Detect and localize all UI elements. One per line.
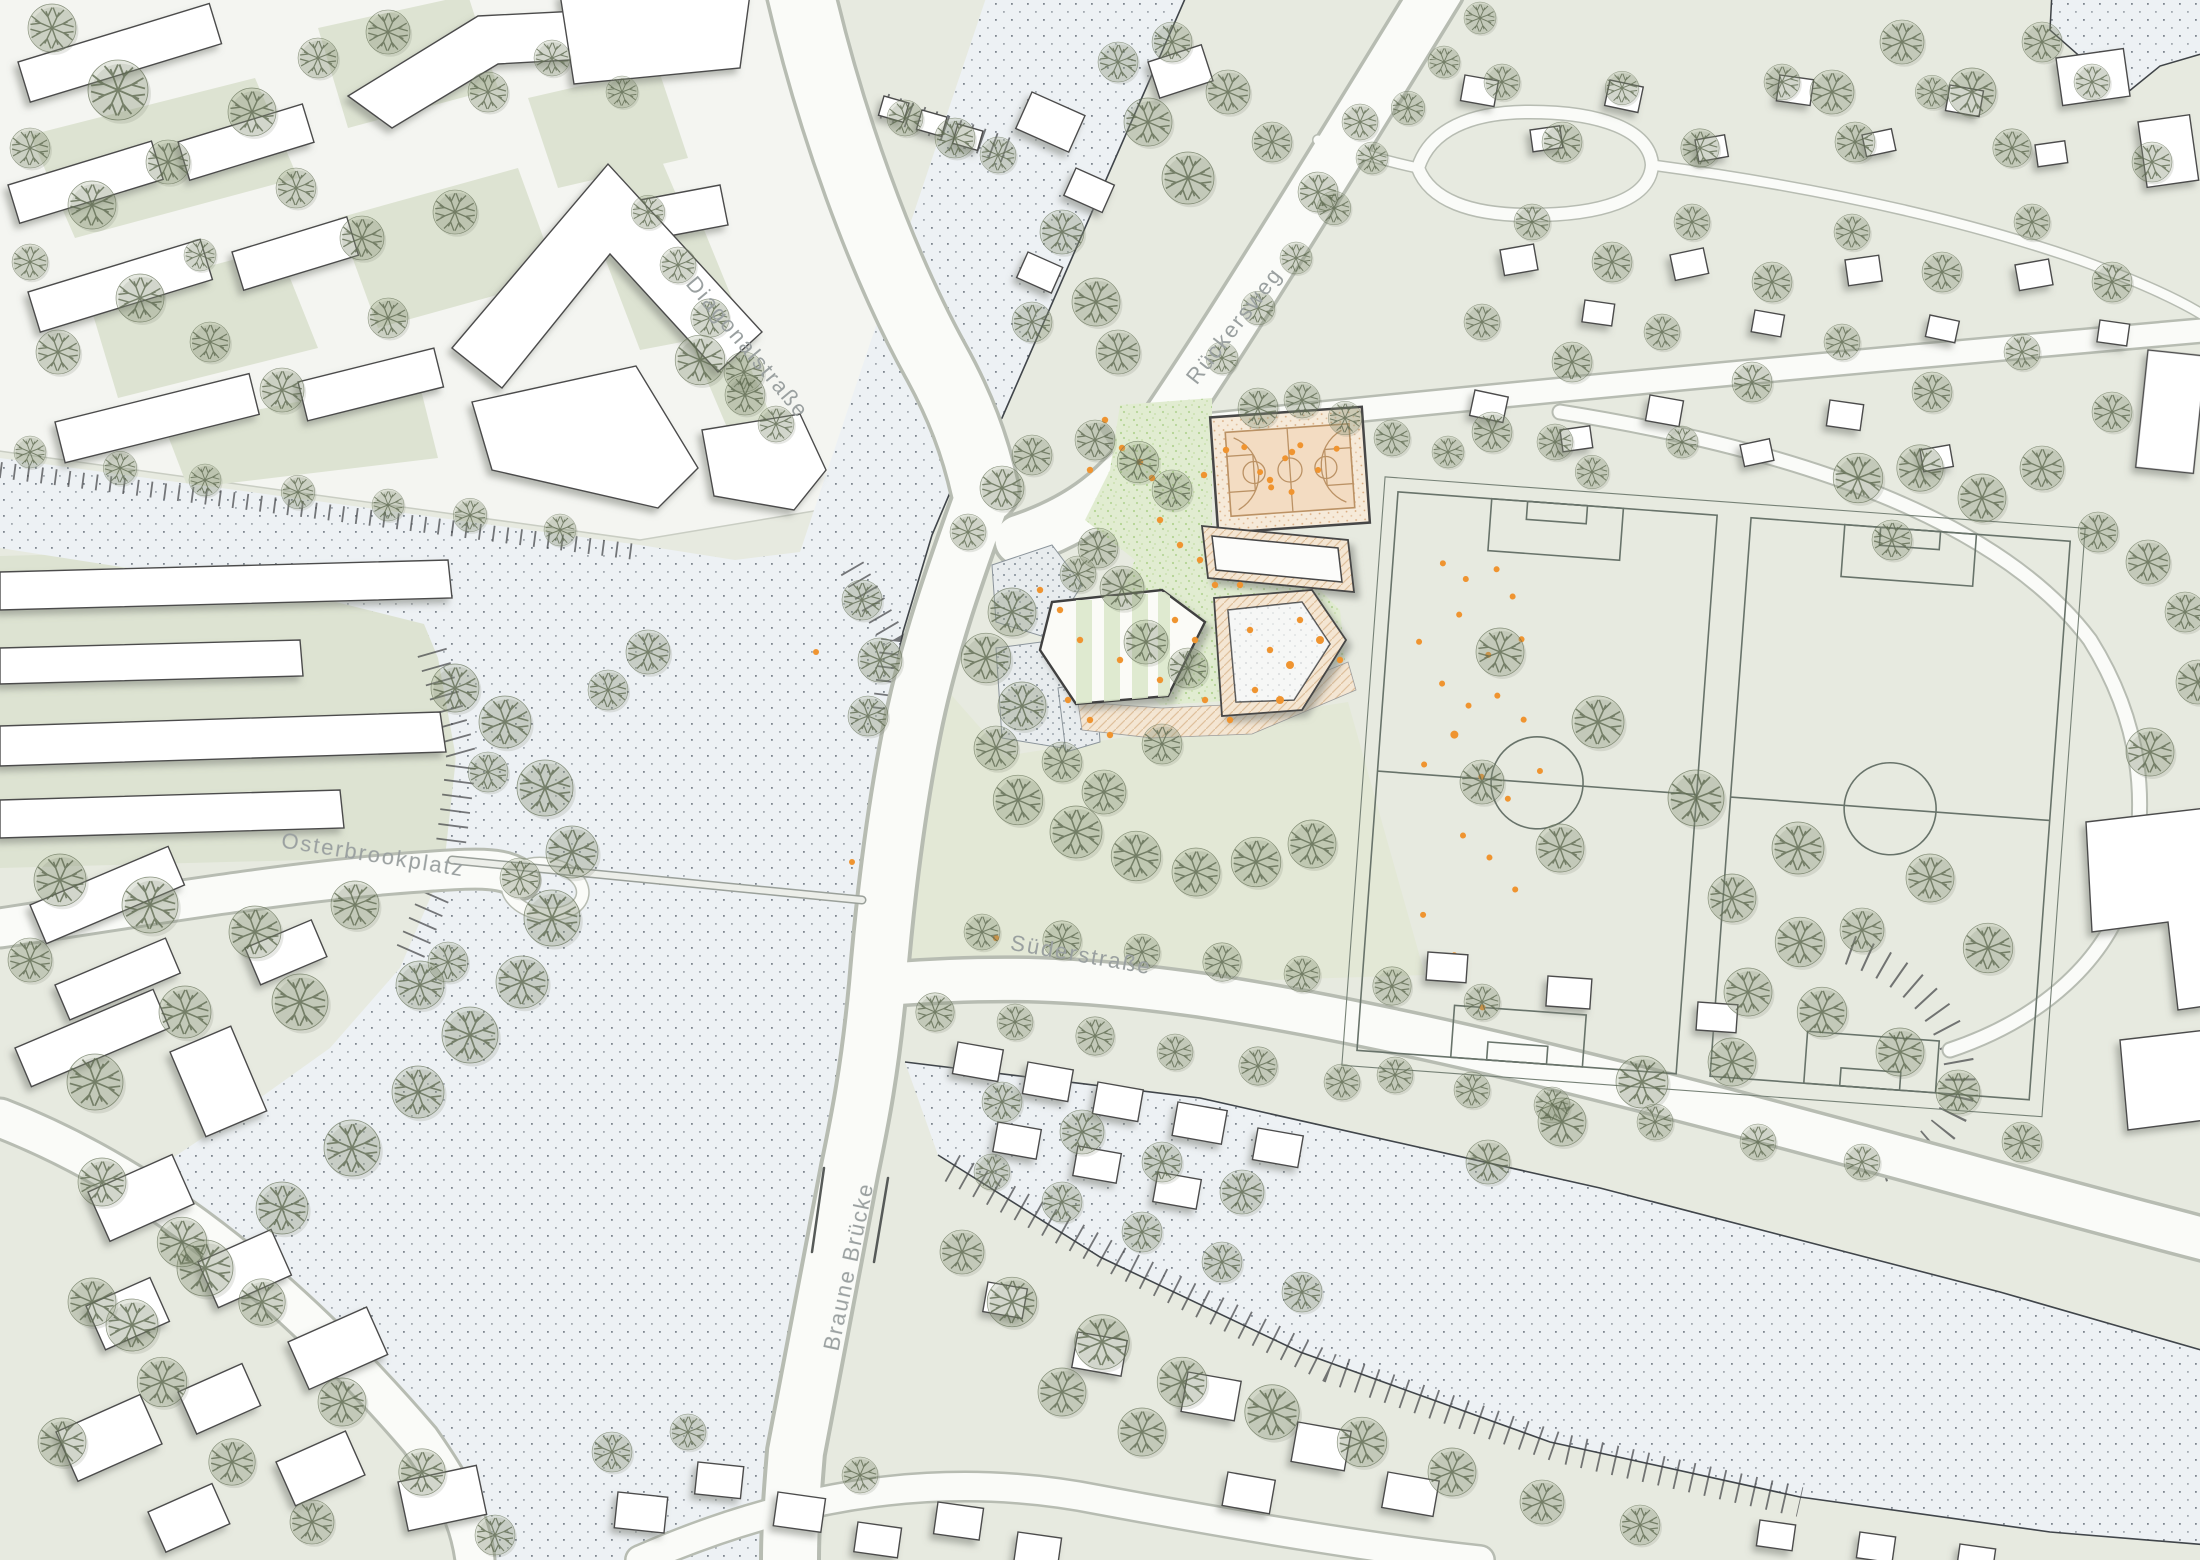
site-plan-map: Diagonalstraße Rückersweg Osterbrookplat… [0, 0, 2200, 1560]
site-plan-stage: Diagonalstraße Rückersweg Osterbrookplat… [0, 0, 2200, 1560]
